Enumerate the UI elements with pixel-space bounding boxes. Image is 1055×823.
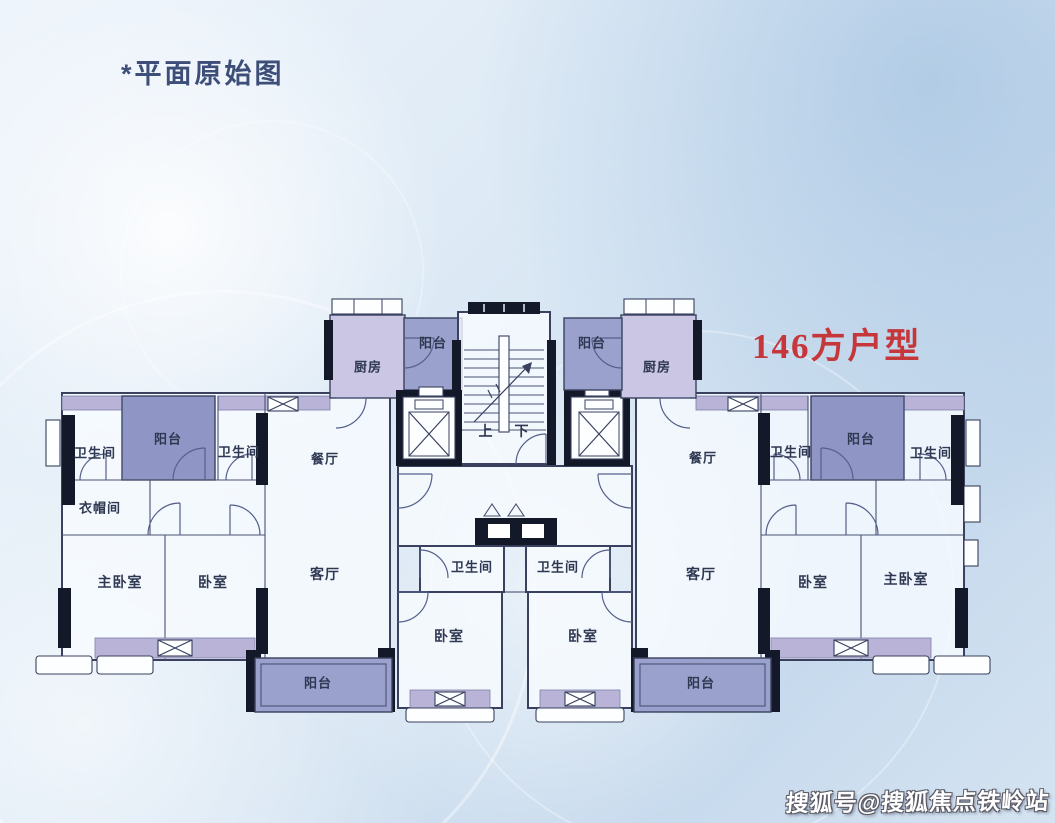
room-label-bedroom-left: 卧室	[198, 572, 228, 592]
room-label-bedroom-center-right: 卧室	[568, 626, 598, 646]
room-label-master-bedroom-right: 主卧室	[884, 569, 929, 589]
right-kitchen	[621, 299, 702, 398]
elevator-left	[396, 387, 462, 466]
room-label-balcony-left-top: 阳台	[154, 429, 182, 448]
room-label-kitchen-right: 厨房	[643, 357, 671, 376]
room-label-cloakroom-left: 衣帽间	[79, 498, 121, 517]
room-label-bathroom-right-outer: 卫生间	[910, 443, 952, 462]
room-label-bathroom-center-right: 卫生间	[537, 557, 579, 576]
sohu-watermark: 搜狐号@搜狐焦点铁岭站	[784, 782, 1050, 818]
room-label-bathroom-center-left: 卫生间	[451, 557, 493, 576]
room-label-dining-left: 餐厅	[311, 449, 339, 468]
room-label-balcony-right-bottom: 阳台	[687, 673, 715, 692]
room-label-master-bedroom-left: 主卧室	[98, 572, 143, 592]
core-bathrooms	[420, 546, 610, 592]
core-staircase	[452, 302, 556, 465]
screenshot-root: *平面原始图 146方户型	[0, 0, 1055, 823]
room-label-bathroom-left-outer: 卫生间	[74, 443, 116, 462]
room-label-living-left: 客厅	[310, 564, 340, 584]
room-label-balcony-right-top: 阳台	[847, 429, 875, 448]
room-label-kitchen-balcony-right: 阳台	[578, 333, 606, 352]
room-label-kitchen-balcony-left: 阳台	[419, 333, 447, 352]
room-label-kitchen-left: 厨房	[354, 357, 382, 376]
room-label-balcony-left-bottom: 阳台	[304, 673, 332, 692]
room-label-living-right: 客厅	[686, 564, 716, 584]
core-bedrooms	[398, 592, 632, 722]
room-label-bedroom-center-left: 卧室	[434, 626, 464, 646]
left-kitchen	[324, 299, 405, 398]
right-kitchen-balcony	[564, 318, 622, 390]
room-label-bathroom-right-inner: 卫生间	[770, 442, 812, 461]
room-label-bedroom-right: 卧室	[798, 572, 828, 592]
room-label-dining-right: 餐厅	[689, 448, 717, 467]
floor-plan-drawing	[0, 0, 1055, 823]
room-label-bathroom-left-inner: 卫生间	[218, 442, 260, 461]
elevator-right	[564, 387, 630, 466]
stairs-down-label: 下	[515, 421, 530, 441]
stairs-up-label: 上	[479, 421, 494, 441]
